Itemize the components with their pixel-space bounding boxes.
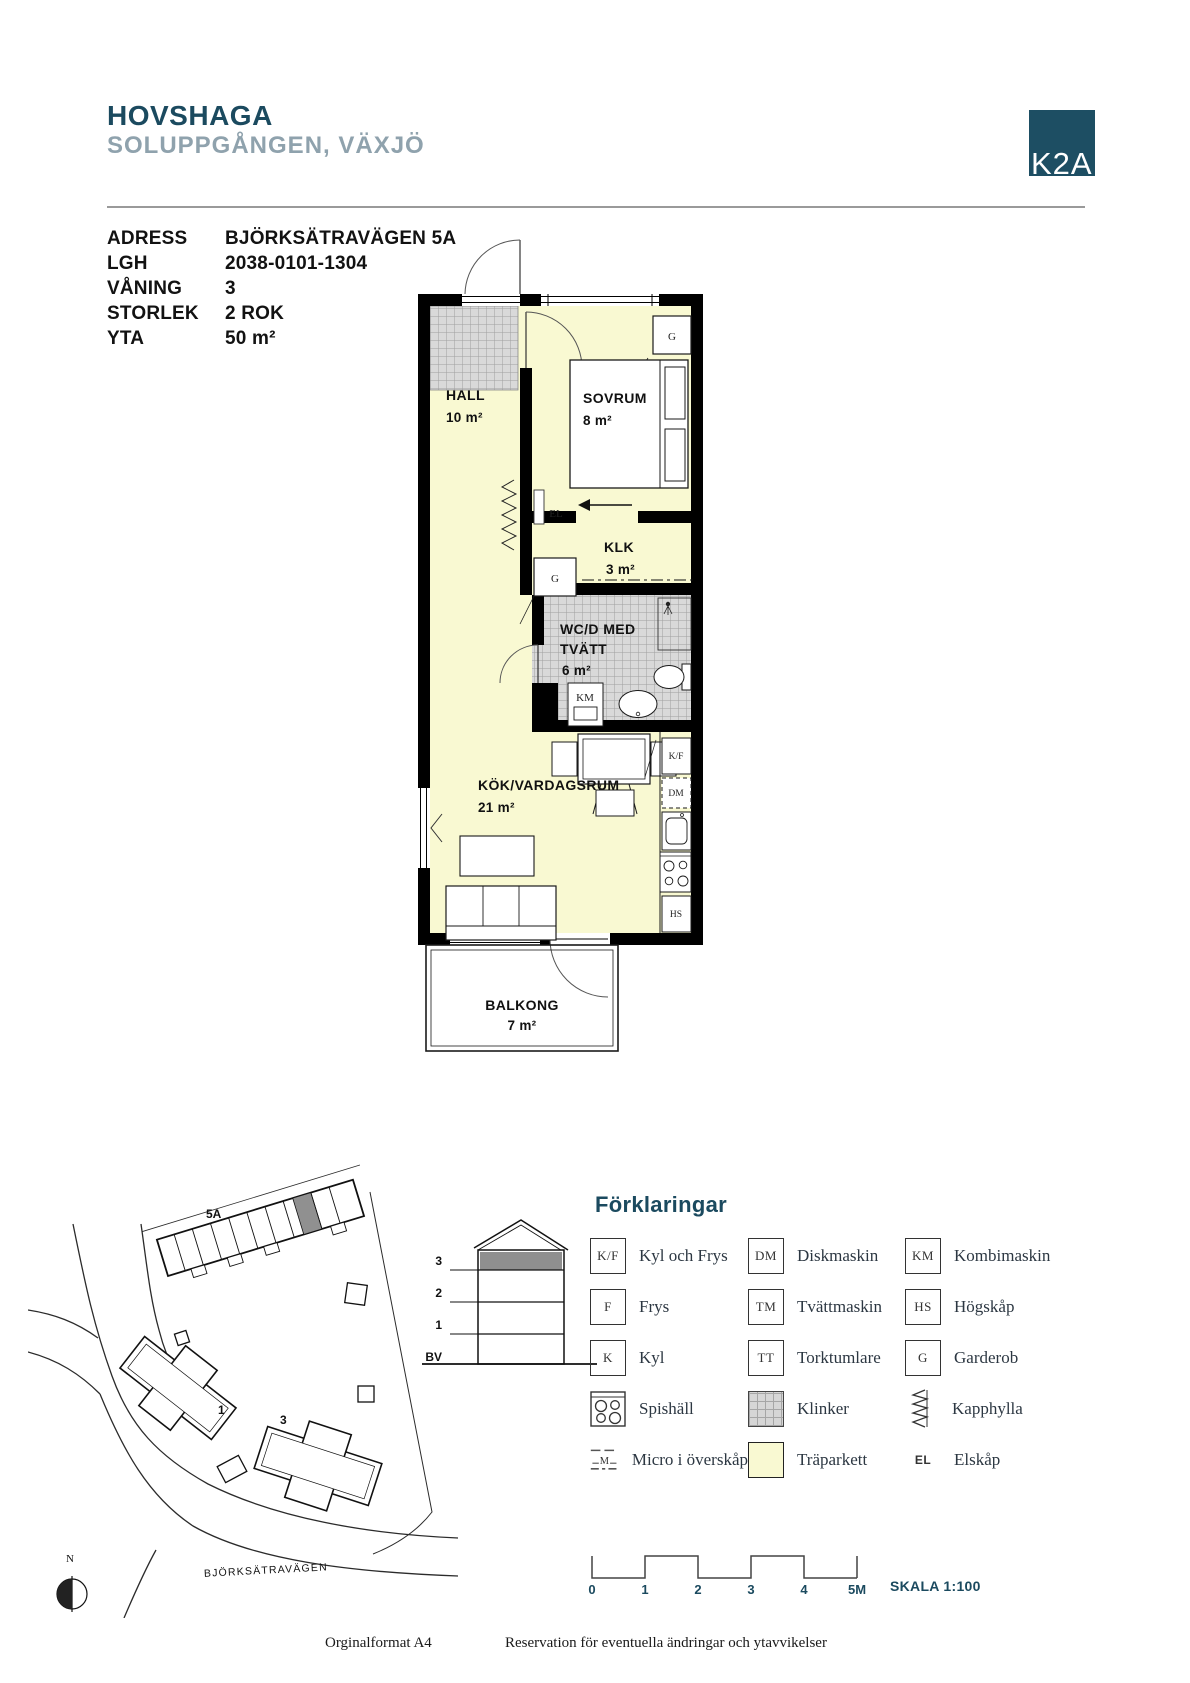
info-value: 2 ROK	[225, 301, 284, 326]
legend-item-km: KM Kombimaskin	[905, 1230, 1095, 1281]
parquet-swatch	[748, 1442, 784, 1478]
klinker-swatch	[748, 1391, 784, 1427]
room-label-klk: KLK	[604, 539, 634, 555]
coffee-table	[460, 836, 534, 876]
building-3-label: 3	[280, 1413, 287, 1427]
road-label: BJÖRKSÄTRAVÄGEN	[204, 1561, 328, 1579]
tm-symbol: TM	[748, 1289, 784, 1325]
micro-icon: M	[590, 1443, 619, 1477]
legend: K/F Kyl och Frys DM Diskmaskin KM Kombim…	[590, 1230, 1150, 1485]
kapphylla-icon	[905, 1388, 939, 1430]
legend-item-micro: M Micro i överskåp	[590, 1434, 748, 1485]
info-label: LGH	[107, 251, 225, 276]
k2a-logo: K2A	[1029, 110, 1095, 176]
dm-symbol: DM	[748, 1238, 784, 1274]
garderob-marker: G	[551, 573, 559, 585]
highlighted-floor	[480, 1252, 562, 1270]
legend-item-spishall: Spishäll	[590, 1383, 748, 1434]
floor-label-2: 2	[435, 1286, 442, 1300]
room-area-wc: 6 m²	[562, 663, 591, 678]
dm-marker: DM	[668, 789, 684, 799]
room-label-kok: KÖK/VARDAGSRUM	[478, 777, 619, 793]
km-symbol: KM	[905, 1238, 941, 1274]
scale-tick-3: 3	[747, 1582, 754, 1597]
scale-tick-4: 4	[800, 1582, 808, 1597]
hs-symbol: HS	[905, 1289, 941, 1325]
floor-label-1: 1	[435, 1318, 442, 1332]
room-label-sovrum: SOVRUM	[583, 390, 647, 406]
tt-symbol: TT	[748, 1340, 784, 1376]
scale-label: SKALA 1:100	[890, 1578, 981, 1594]
scale-tick-0: 0	[588, 1582, 595, 1597]
room-area-sovrum: 8 m²	[583, 413, 612, 428]
entrance-door	[462, 240, 520, 306]
room-label-wc-1: WC/D MED	[560, 621, 636, 637]
scale-tick-5m: 5M	[848, 1582, 866, 1597]
kf-symbol: K/F	[590, 1238, 626, 1274]
room-area-balkong: 7 m²	[508, 1018, 537, 1033]
bedroom-window	[538, 294, 662, 306]
el-symbol: EL	[915, 1453, 931, 1467]
building-5a-label: 5A	[206, 1207, 222, 1221]
micro-m: M	[600, 1456, 609, 1467]
legend-title: Förklaringar	[595, 1192, 727, 1218]
legend-item-f: F Frys	[590, 1281, 748, 1332]
building-3	[249, 1409, 388, 1522]
compass-n-label: N	[66, 1553, 74, 1565]
room-area-hall: 10 m²	[446, 410, 483, 425]
legend-item-tm: TM Tvättmaskin	[748, 1281, 905, 1332]
legend-item-kf: K/F Kyl och Frys	[590, 1230, 748, 1281]
info-value: 3	[225, 276, 236, 301]
chair	[552, 742, 577, 776]
info-label: ADRESS	[107, 226, 225, 251]
sofa	[446, 886, 556, 940]
sink	[619, 691, 657, 718]
legend-item-klinker: Klinker	[748, 1383, 905, 1434]
room-label-balkong: BALKONG	[485, 997, 559, 1013]
room-label-wc-2: TVÄTT	[560, 641, 607, 657]
k-symbol: K	[590, 1340, 626, 1376]
toilet-bowl	[654, 666, 684, 689]
floor-plan: G EL G KM	[398, 228, 728, 1073]
info-value: 50 m²	[225, 326, 276, 351]
info-label: STORLEK	[107, 301, 225, 326]
footer-disclaimer: Reservation för eventuella ändringar och…	[505, 1635, 827, 1652]
page-subtitle: SOLUPPGÅNGEN, VÄXJÖ	[107, 132, 425, 160]
building-section: 3 2 1 BV	[392, 1128, 602, 1388]
page-title: HOVSHAGA	[107, 100, 273, 132]
scale-tick-1: 1	[641, 1582, 648, 1597]
scale-bar: 0 1 2 3 4 5M	[585, 1548, 885, 1600]
k2a-logo-text: K2A	[1031, 146, 1093, 176]
chair	[596, 790, 634, 816]
compass: N	[57, 1553, 87, 1612]
legend-item-tt: TT Torktumlare	[748, 1332, 905, 1383]
balcony-door	[550, 939, 608, 997]
pillow	[665, 367, 685, 419]
room-area-kok: 21 m²	[478, 800, 515, 815]
floor-label-bv: BV	[425, 1350, 442, 1364]
room-label-hall: HALL	[446, 387, 485, 403]
floorplan-document: HOVSHAGA SOLUPPGÅNGEN, VÄXJÖ K2A ADRESS …	[0, 0, 1190, 1683]
pillow	[665, 429, 685, 481]
header-divider	[107, 206, 1085, 208]
scale-tick-2: 2	[694, 1582, 701, 1597]
legend-item-g: G Garderob	[905, 1332, 1095, 1383]
legend-item-dm: DM Diskmaskin	[748, 1230, 905, 1281]
info-value: 2038-0101-1304	[225, 251, 367, 276]
info-label: VÅNING	[107, 276, 225, 301]
legend-item-k: K Kyl	[590, 1332, 748, 1383]
g-symbol: G	[905, 1340, 941, 1376]
stove	[660, 852, 691, 892]
building-5a	[142, 1165, 377, 1288]
km-marker: KM	[576, 692, 594, 704]
building-1-label: 1	[218, 1403, 225, 1417]
room-area-klk: 3 m²	[606, 562, 635, 577]
footer-format: Orginalformat A4	[325, 1635, 432, 1652]
kf-marker: K/F	[669, 752, 684, 762]
floor-label-3: 3	[435, 1254, 442, 1268]
info-label: YTA	[107, 326, 225, 351]
legend-item-kapphylla: Kapphylla	[905, 1383, 1095, 1434]
legend-item-elskap: EL Elskåp	[905, 1434, 1095, 1485]
legend-item-traparkett: Träparkett	[748, 1434, 905, 1485]
hs-marker: HS	[670, 910, 682, 920]
washer-dryer	[568, 683, 603, 726]
stove-icon	[590, 1391, 626, 1427]
garderob-marker: G	[668, 331, 676, 343]
entry-klinker-mat	[430, 306, 518, 390]
legend-item-hs: HS Högskåp	[905, 1281, 1095, 1332]
f-symbol: F	[590, 1289, 626, 1325]
el-cabinet	[534, 490, 544, 524]
el-marker: EL	[549, 508, 563, 520]
